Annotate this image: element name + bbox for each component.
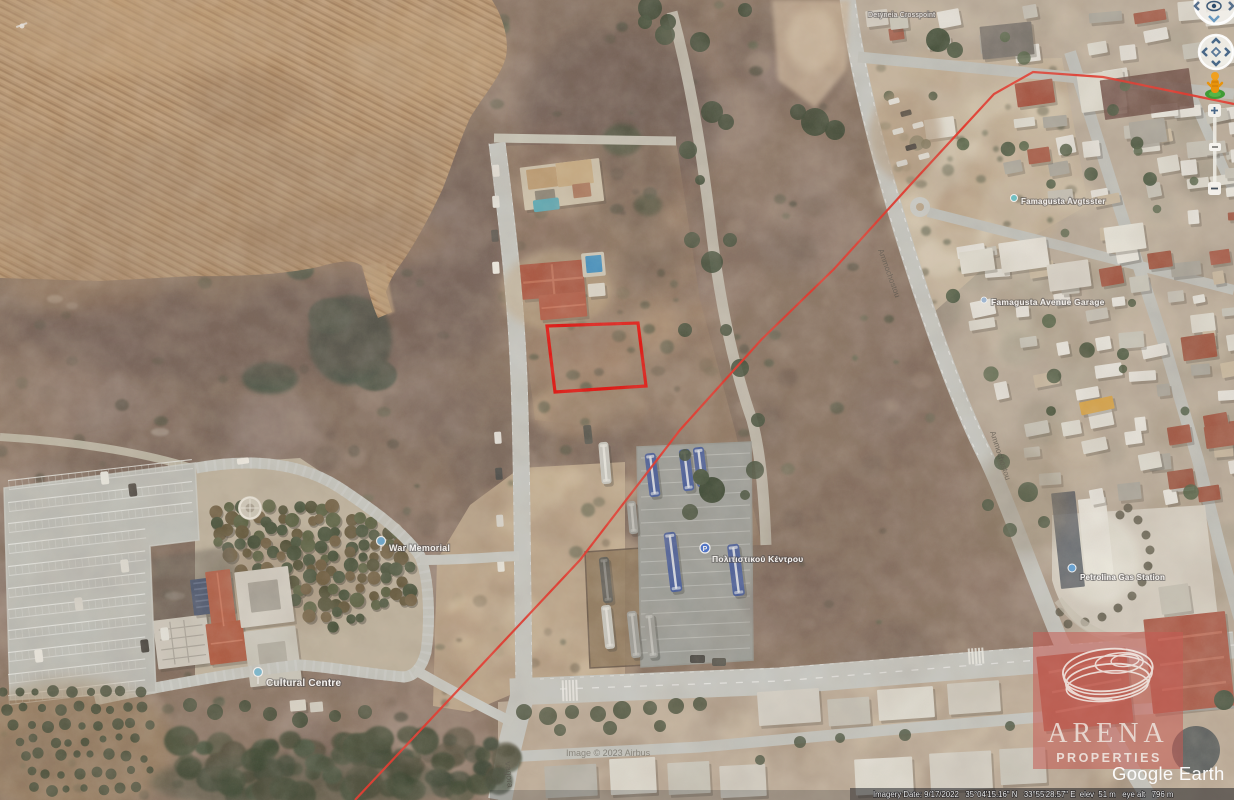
- svg-text:ARENA: ARENA: [1047, 718, 1168, 749]
- svg-text:Google Earth: Google Earth: [1112, 763, 1225, 784]
- svg-text:Imagery Date: 9/17/2022 35°0: Imagery Date: 9/17/2022 35°04'15.16" N 3…: [873, 790, 1173, 799]
